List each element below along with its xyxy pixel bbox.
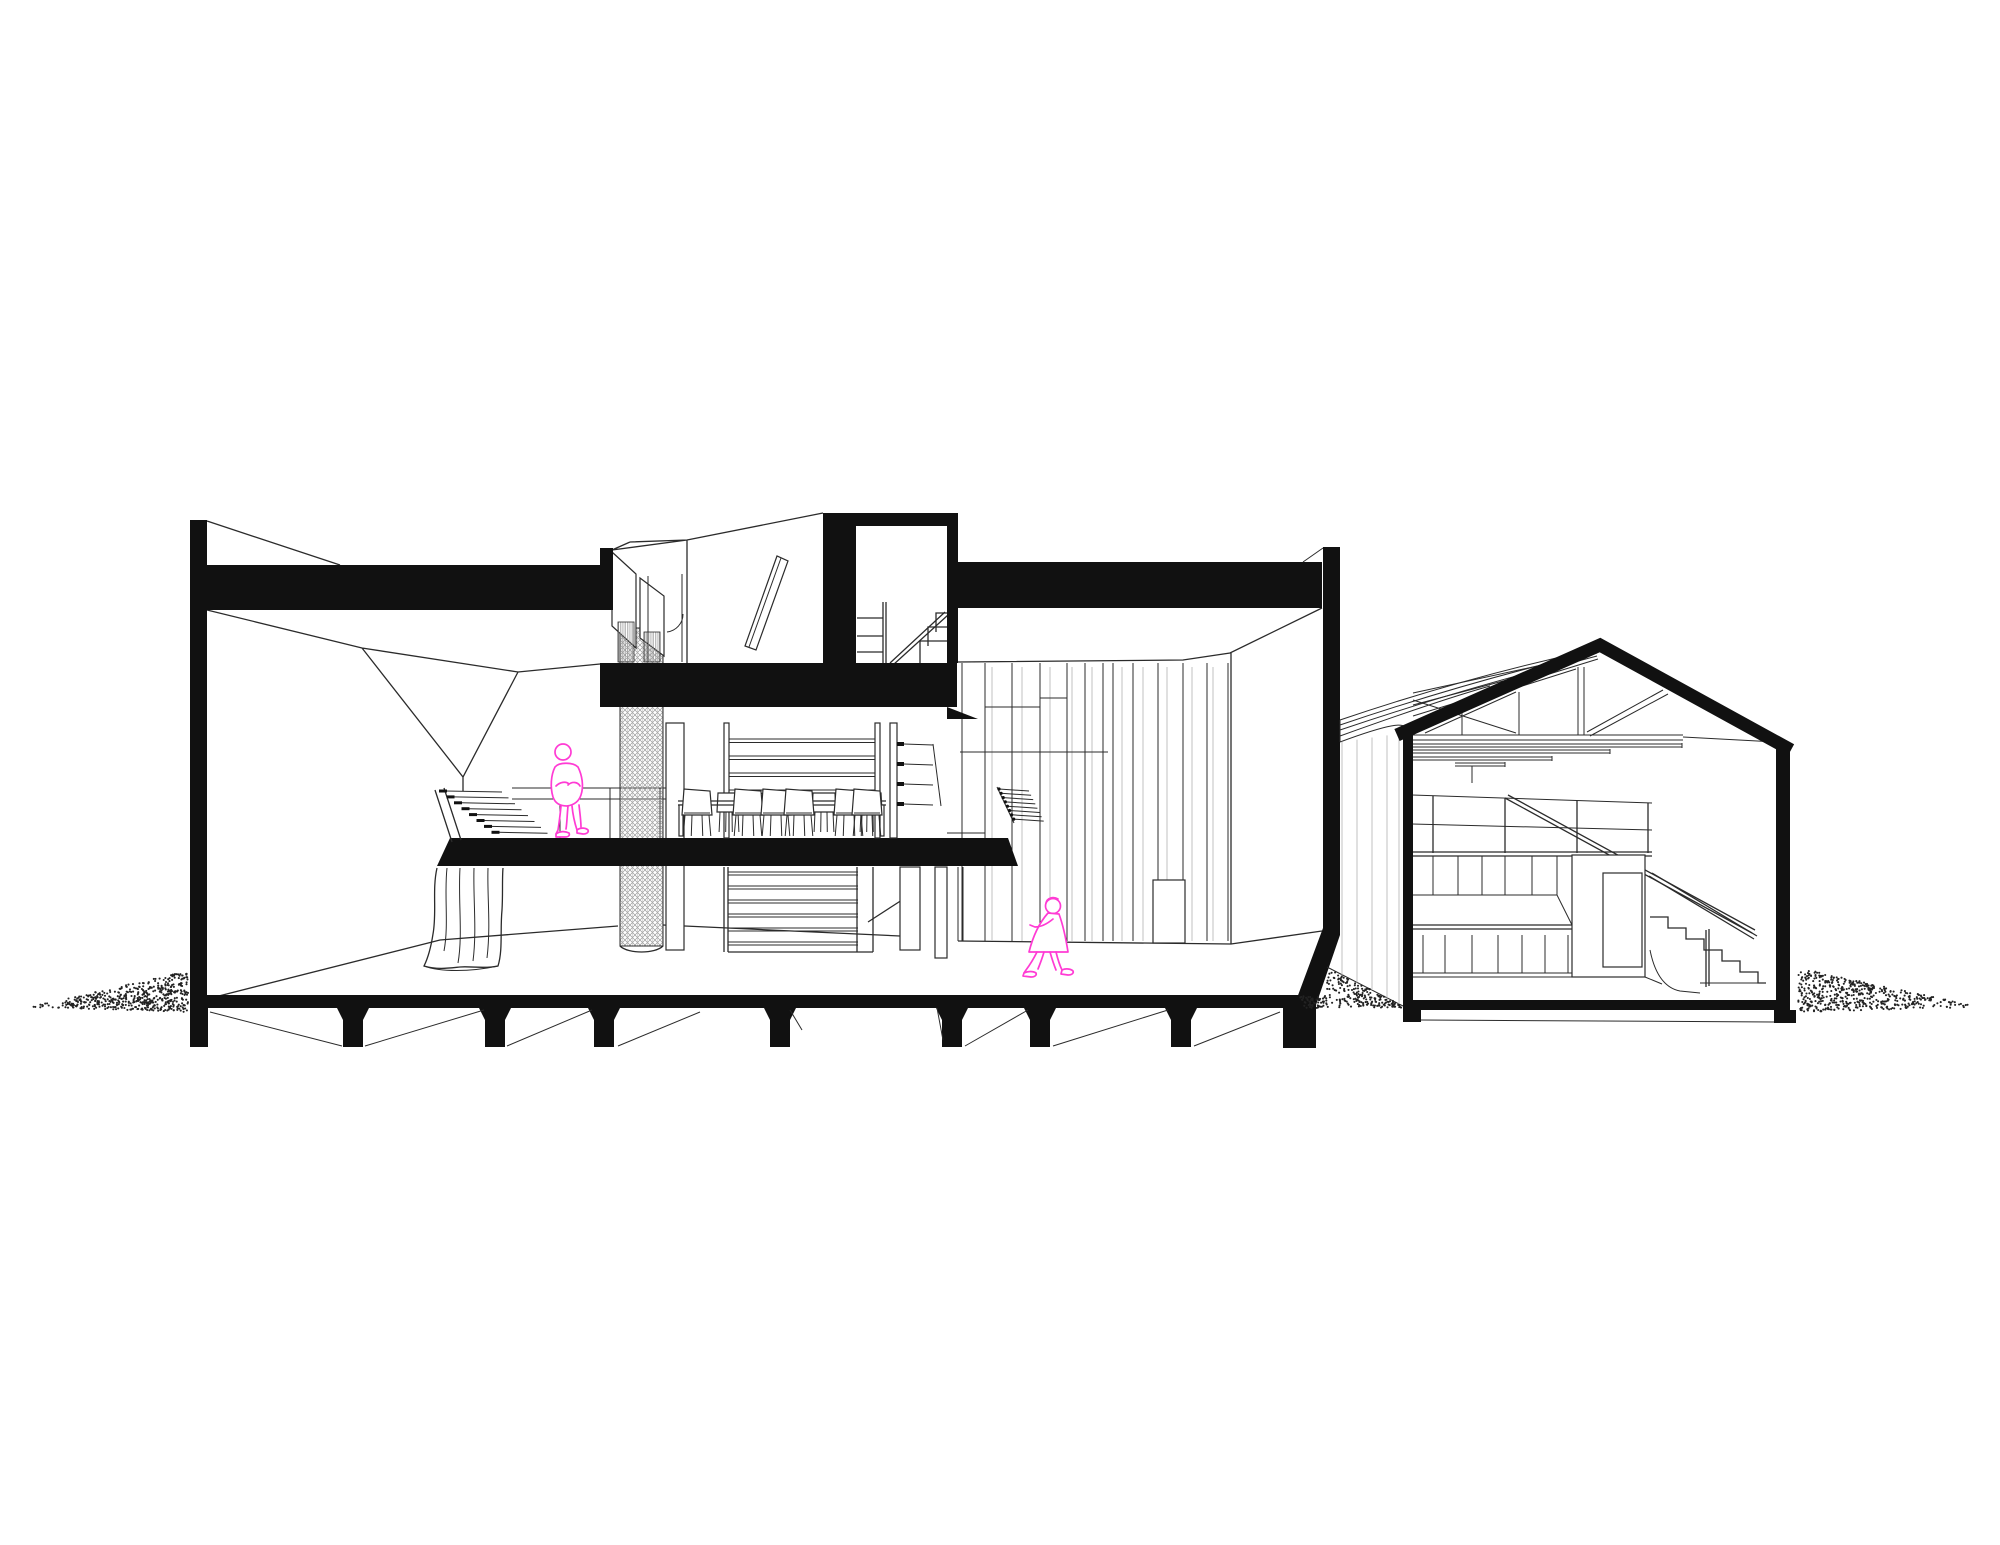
right-space-ceiling bbox=[958, 608, 1322, 944]
stair-tread bbox=[469, 809, 522, 810]
foundation-pier bbox=[337, 1008, 369, 1047]
lower-stair-tread bbox=[728, 914, 858, 917]
ladder-tick bbox=[1001, 793, 1031, 795]
chair-back bbox=[784, 789, 814, 815]
counter-top bbox=[1412, 925, 1590, 940]
mezzanine-stair bbox=[435, 788, 548, 842]
tread-nosing bbox=[492, 831, 500, 834]
drape-folds bbox=[444, 868, 489, 963]
stair-tread bbox=[454, 797, 509, 798]
chair-leg bbox=[843, 815, 844, 836]
parapet-corner-line bbox=[1303, 548, 1323, 562]
person-walking-figure bbox=[1023, 898, 1073, 977]
figure-feet bbox=[1023, 969, 1073, 977]
gable-right-wall-cut bbox=[1776, 744, 1790, 1010]
foundation-pier bbox=[1024, 1008, 1056, 1047]
tilted-skylight-bar bbox=[745, 556, 788, 650]
upper-floor-slab bbox=[600, 663, 957, 707]
tick-dot bbox=[1012, 818, 1015, 821]
bracket-tip bbox=[897, 742, 904, 746]
bay-line bbox=[790, 1010, 802, 1030]
purlin bbox=[1413, 744, 1682, 747]
ladder-tick bbox=[999, 789, 1029, 791]
tick-dot bbox=[1004, 800, 1007, 803]
foundation-perspective-lines bbox=[210, 1008, 1280, 1046]
column-base-curve bbox=[620, 946, 663, 952]
shelf-bracket bbox=[904, 764, 933, 765]
chair-leg bbox=[770, 815, 771, 836]
shelf-frame bbox=[724, 723, 941, 838]
figure-feet bbox=[556, 828, 588, 837]
section-canvas bbox=[0, 0, 2000, 1545]
parapet-beam-right bbox=[955, 562, 1322, 608]
tick-dot bbox=[1006, 805, 1009, 808]
side-stair-handrail bbox=[1649, 873, 1757, 987]
tilted-bar-inner bbox=[749, 558, 781, 647]
ladder-tick bbox=[1012, 815, 1042, 817]
stair-tread bbox=[499, 832, 548, 833]
foundation-pier bbox=[479, 1008, 511, 1047]
tread-nosing bbox=[439, 790, 447, 793]
ground-stipple-left bbox=[33, 973, 190, 1013]
chair-leg bbox=[702, 815, 703, 836]
bridge-stair-rails bbox=[857, 602, 886, 663]
chair-leg bbox=[753, 815, 754, 836]
door-hatched-panel-1 bbox=[618, 622, 634, 662]
stair-tread bbox=[461, 803, 515, 804]
chair-leg bbox=[691, 815, 692, 836]
gable-left-wall-cut bbox=[1403, 727, 1413, 1022]
tread-nosing bbox=[484, 825, 492, 828]
drape-outline bbox=[424, 868, 503, 968]
chair-back bbox=[733, 789, 763, 815]
person-standing-figure bbox=[551, 744, 588, 837]
shelf-rail bbox=[729, 739, 875, 743]
back-wall-paneling bbox=[947, 663, 1228, 943]
clerestory-wall-cut bbox=[823, 513, 856, 663]
chair-leg bbox=[709, 815, 711, 836]
shelf-rail bbox=[729, 756, 875, 760]
chair-back-far bbox=[812, 793, 836, 812]
gable-right-foot bbox=[1774, 1010, 1796, 1023]
lower-stair-tread bbox=[728, 900, 858, 903]
chair-leg bbox=[742, 815, 743, 836]
tick-dot bbox=[1008, 809, 1011, 812]
ceiling-lines bbox=[207, 610, 600, 791]
tread-nosing bbox=[454, 801, 462, 804]
gable-building-section bbox=[1327, 645, 1796, 1023]
hanging-drape bbox=[424, 868, 503, 971]
door-hatched-panel-2 bbox=[644, 632, 660, 662]
counter-column-2 bbox=[935, 867, 947, 958]
mezzanine-slab bbox=[437, 838, 1018, 866]
roof-slope-line bbox=[207, 521, 340, 565]
bracket-tip bbox=[897, 782, 904, 786]
chair-back bbox=[682, 789, 712, 815]
bay-line bbox=[507, 1010, 592, 1046]
chair-leg bbox=[762, 815, 764, 836]
figure-legs bbox=[1024, 952, 1062, 973]
stair-tread bbox=[491, 826, 541, 827]
chair-leg bbox=[811, 815, 813, 836]
chair-leg bbox=[734, 815, 736, 836]
purlin bbox=[1455, 763, 1505, 766]
figure-body bbox=[551, 763, 582, 806]
upper-cabinet-row bbox=[1412, 856, 1572, 925]
chair-leg bbox=[781, 815, 782, 836]
bracket-tip bbox=[897, 762, 904, 766]
bridge-room-stair bbox=[857, 602, 948, 665]
stair-tread bbox=[476, 815, 528, 816]
ladder-tick bbox=[1003, 798, 1033, 800]
lower-stair-and-counter bbox=[724, 867, 963, 958]
ladder-tick bbox=[1014, 819, 1044, 821]
bracket-diagonal bbox=[933, 744, 941, 806]
shelf-post-left bbox=[724, 723, 729, 838]
left-wall-footing bbox=[190, 1008, 208, 1047]
clerestory bbox=[612, 513, 823, 663]
chair-leg bbox=[760, 815, 762, 836]
grade-line bbox=[1421, 1020, 1774, 1022]
bay-line bbox=[1053, 1010, 1168, 1046]
room-door-opening bbox=[1603, 873, 1642, 967]
tick-dot bbox=[1002, 796, 1005, 799]
foundation-pier bbox=[764, 1008, 796, 1047]
chair-leg bbox=[835, 815, 837, 836]
figure-body bbox=[1029, 913, 1068, 952]
edge-ladder-ticks bbox=[997, 787, 1044, 823]
lower-stair-tread bbox=[728, 886, 858, 889]
purlin bbox=[1413, 750, 1610, 753]
bridge-stair-stringer bbox=[890, 612, 948, 665]
shelf-bracket bbox=[904, 804, 933, 805]
gable-floor-slab bbox=[1403, 1000, 1790, 1010]
bay-line bbox=[1194, 1012, 1280, 1046]
door-swing-arc bbox=[667, 614, 683, 632]
shelf-bracket bbox=[904, 744, 933, 745]
right-wall-cut bbox=[1297, 547, 1340, 1005]
ladder-tick bbox=[1005, 802, 1035, 804]
bay-line bbox=[365, 1010, 484, 1046]
gable-lower-interior bbox=[1412, 752, 1785, 1000]
bay-line bbox=[210, 1012, 342, 1046]
tread-nosing bbox=[469, 813, 477, 816]
tread-nosing bbox=[462, 807, 470, 810]
bridge-stair-steps bbox=[920, 613, 947, 663]
lower-stair-stringers bbox=[724, 867, 873, 952]
lower-stair-tread bbox=[728, 872, 858, 875]
counter-column-1 bbox=[900, 867, 920, 950]
railing-posts bbox=[1433, 796, 1648, 853]
back-wall-door bbox=[1153, 880, 1185, 943]
purlin-boards bbox=[1413, 743, 1682, 767]
room-corner-line bbox=[1645, 977, 1662, 984]
tread-nosing bbox=[447, 795, 455, 798]
ground-slab bbox=[190, 995, 1300, 1008]
chair-leg bbox=[788, 815, 790, 836]
chair-leg bbox=[719, 812, 720, 832]
stair-tread bbox=[484, 821, 535, 822]
parapet-end-pier bbox=[600, 548, 613, 610]
chair-leg bbox=[804, 815, 805, 836]
architectural-section-drawing bbox=[0, 0, 2000, 1545]
tick-dot bbox=[1010, 813, 1013, 816]
foundation-pier bbox=[588, 1008, 620, 1047]
bay-line bbox=[965, 1010, 1028, 1046]
foundation-piers bbox=[190, 1008, 1197, 1047]
shelf-bracket bbox=[904, 784, 933, 785]
wide-lower-stair bbox=[724, 867, 873, 952]
stair-tread bbox=[446, 791, 502, 792]
tread-nosing bbox=[477, 819, 485, 822]
ladder-tick bbox=[1010, 811, 1040, 813]
ground-stipple-right bbox=[1797, 970, 1968, 1012]
figure-head bbox=[555, 744, 571, 760]
chair-leg bbox=[785, 815, 787, 836]
purlin bbox=[1413, 757, 1552, 760]
foundation-pier bbox=[1165, 1008, 1197, 1047]
bay-line bbox=[618, 1012, 700, 1046]
chair-leg bbox=[793, 815, 794, 836]
parapet-beam-left bbox=[190, 565, 613, 610]
lower-stair-tread bbox=[728, 942, 858, 945]
tick-dot bbox=[1000, 792, 1003, 795]
ladder-rail bbox=[997, 787, 1014, 823]
bridge-roof-cut bbox=[856, 513, 947, 526]
chair-back bbox=[852, 789, 882, 815]
cabinet-edge bbox=[1412, 895, 1572, 925]
shelf-rail bbox=[729, 773, 875, 777]
tick-dot bbox=[997, 787, 1000, 790]
bracket-tip bbox=[897, 802, 904, 806]
long-table-and-chairs bbox=[678, 789, 886, 836]
shelf-end-frame bbox=[890, 723, 897, 838]
gable-left-foot bbox=[1403, 1005, 1421, 1022]
